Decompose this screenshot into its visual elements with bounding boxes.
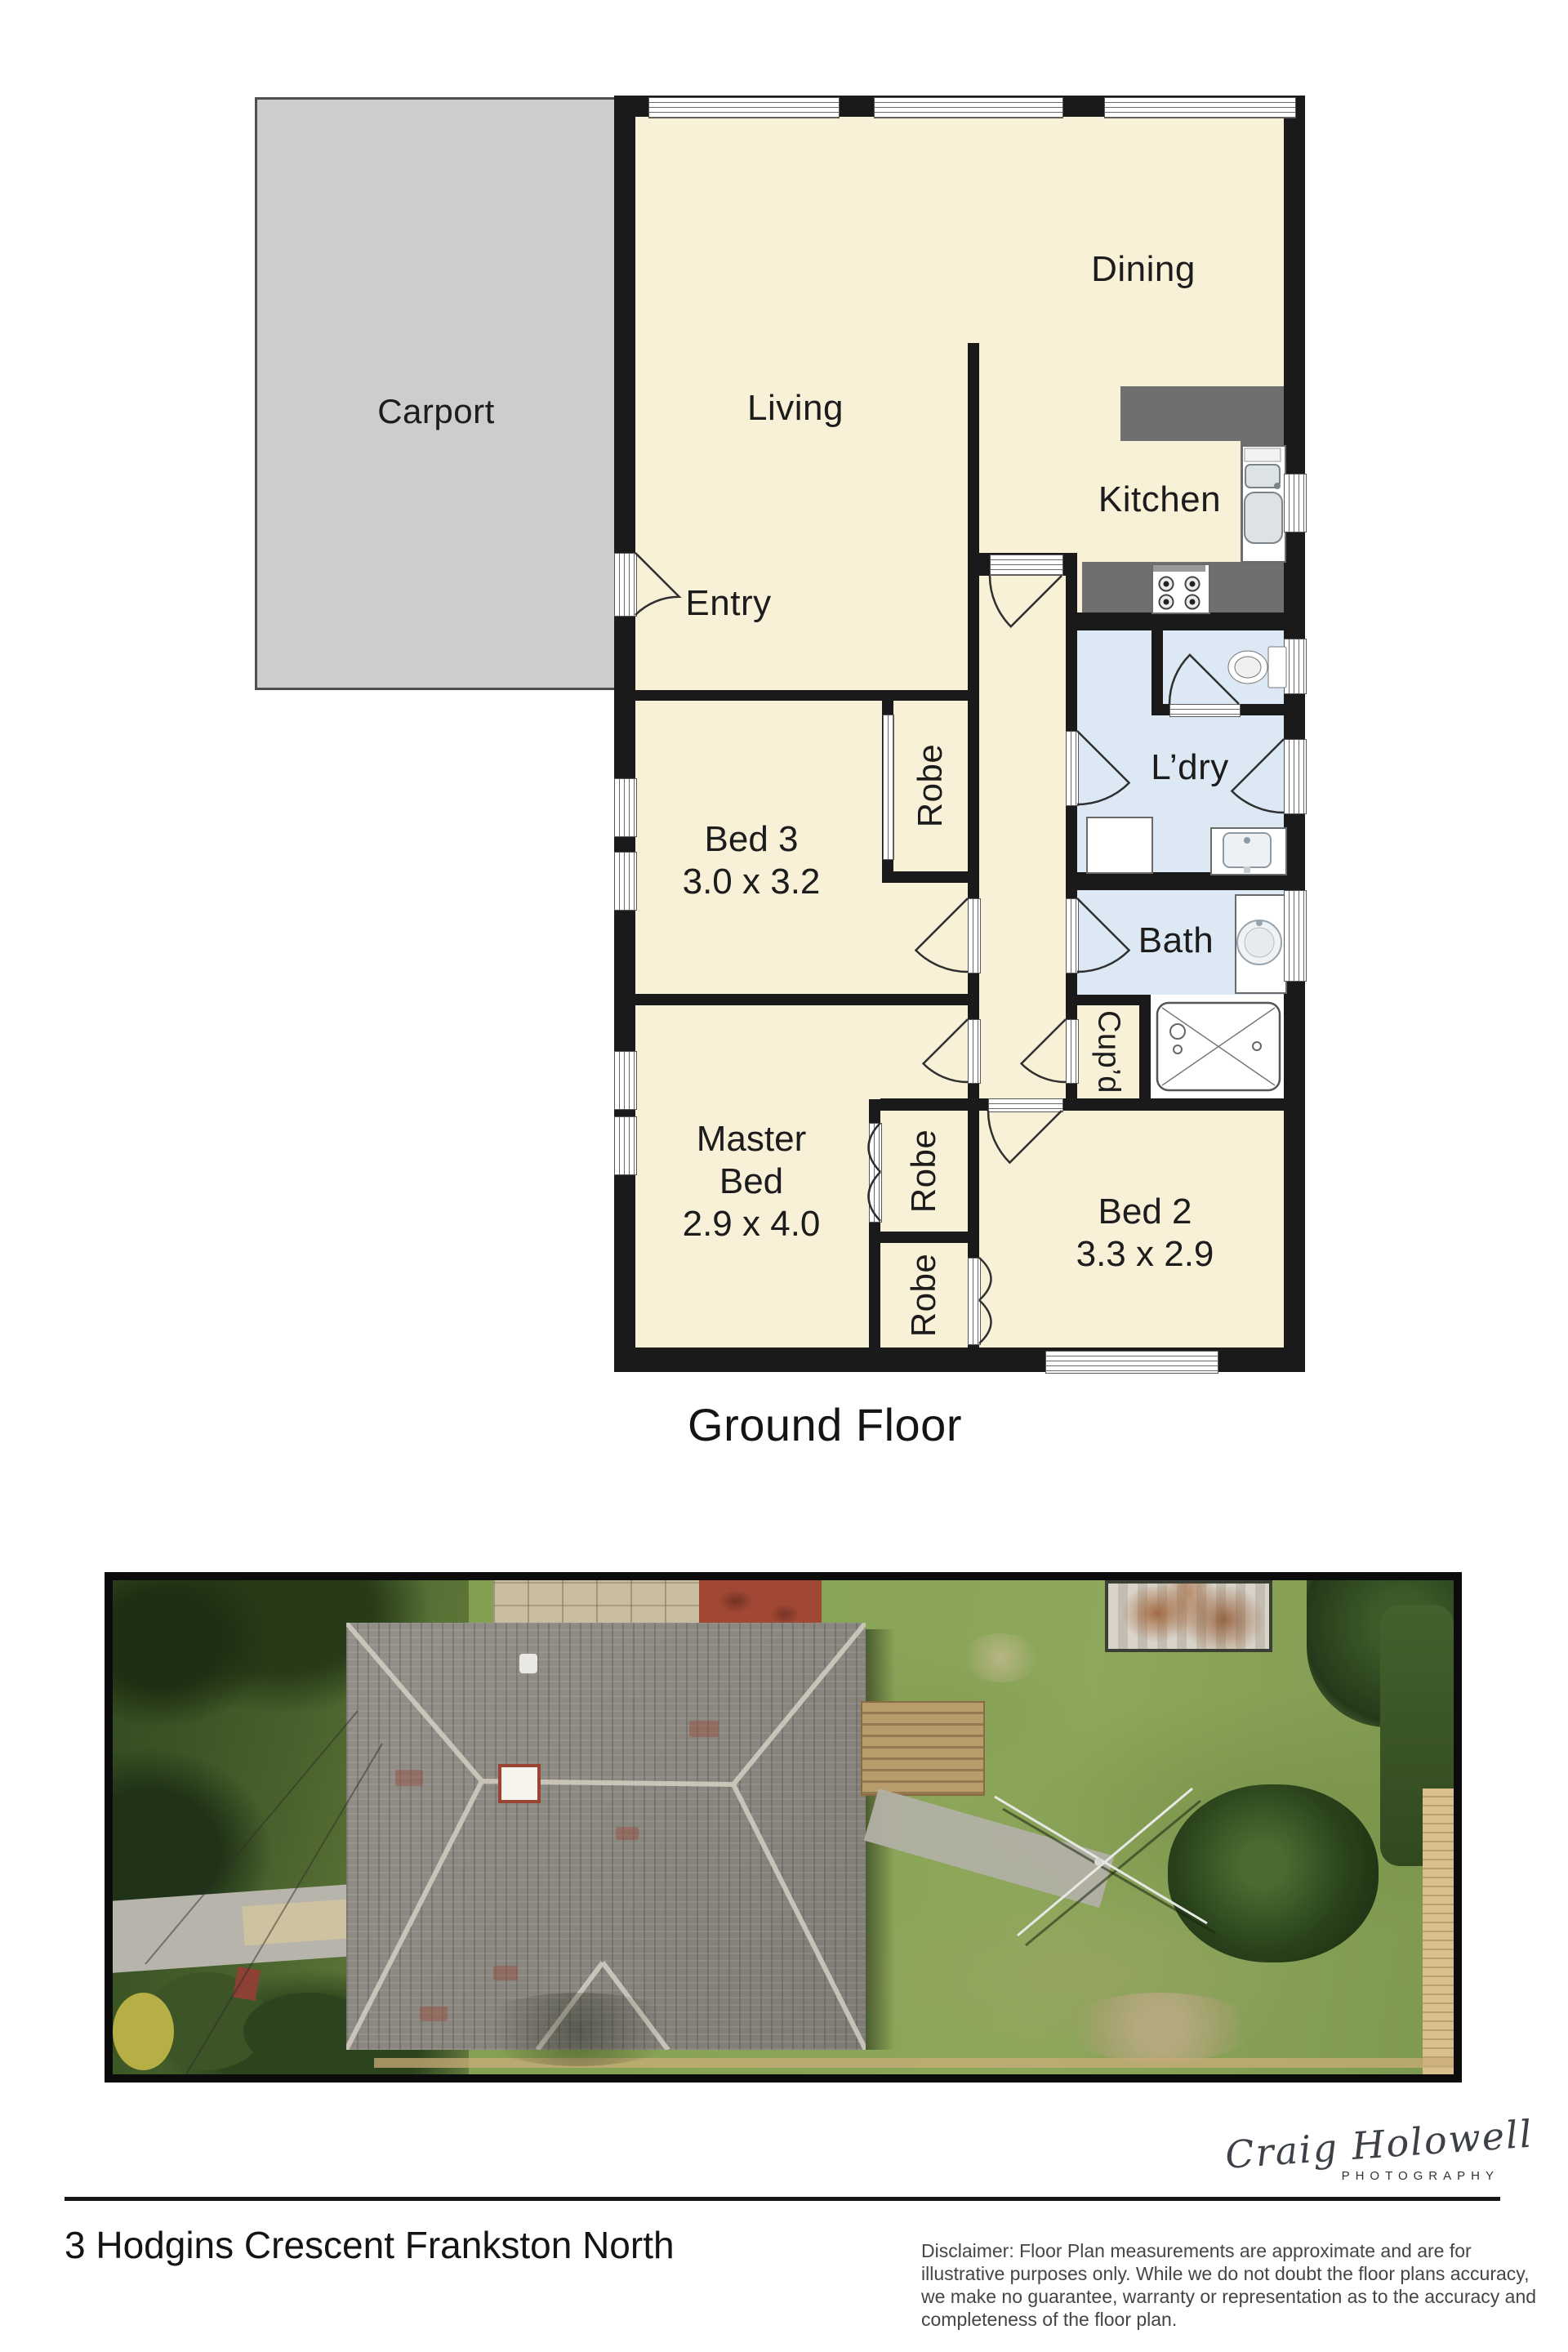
divider-line <box>65 2197 1500 2201</box>
toilet-icon <box>1228 647 1286 688</box>
room-label-dining: Dining <box>1091 249 1196 290</box>
kitchen-sink-icon <box>1245 448 1282 543</box>
door-arc-entry <box>635 553 679 615</box>
room-label-living: Living <box>747 388 844 429</box>
door-arc-master <box>924 1019 968 1082</box>
door-arc-wc <box>1169 655 1239 704</box>
room-label-bed2: Bed 2 3.3 x 2.9 <box>1076 1191 1214 1276</box>
stove-burners-icon <box>1153 565 1205 609</box>
room-label-master: Master Bed 2.9 x 4.0 <box>683 1118 821 1245</box>
disclaimer-text: Disclaimer: Floor Plan measurements are … <box>921 2239 1536 2331</box>
room-label-robe-master: Robe <box>904 1129 943 1213</box>
bath-basin-icon <box>1237 920 1281 964</box>
door-arc-laundry <box>1077 731 1129 804</box>
house-outline: Living Dining Kitchen Entry Bed 3 3.0 x … <box>614 96 1305 1372</box>
laundry-basin-icon <box>1223 833 1271 873</box>
room-label-kitchen: Kitchen <box>1098 479 1221 520</box>
room-label-cupboard: Cup’d <box>1091 1010 1126 1094</box>
plan-caption: Ground Floor <box>688 1398 962 1451</box>
aerial-photo-content <box>113 1580 1454 2074</box>
bifold-door-robe-bed2 <box>979 1258 991 1343</box>
door-arc-cupboard <box>1022 1019 1066 1082</box>
photographer-signature: Craig Holowell PHOTOGRAPHY <box>1225 2123 1503 2183</box>
room-label-entry: Entry <box>685 583 771 624</box>
floorplan-page: { "floorplan": { "caption": "Ground Floo… <box>0 0 1568 2352</box>
aerial-photo <box>105 1572 1462 2082</box>
door-arc-bed3 <box>915 898 968 972</box>
disclaimer-line: completeness of the floor plan. <box>921 2308 1536 2331</box>
signature-name: Craig Holowell <box>1224 2114 1504 2177</box>
room-label-bath: Bath <box>1138 920 1214 961</box>
door-arc-bath <box>1077 898 1129 972</box>
door-arc-hall <box>990 576 1062 626</box>
bifold-door-robe-master <box>869 1123 881 1221</box>
room-label-laundry: L’dry <box>1151 747 1228 788</box>
bathtub-icon <box>1157 1003 1280 1090</box>
room-label-robe-bed3: Robe <box>911 744 950 827</box>
door-arc-laundry-ext <box>1232 739 1284 813</box>
room-label-robe-bed2: Robe <box>904 1254 943 1337</box>
property-address: 3 Hodgins Crescent Frankston North <box>65 2223 675 2267</box>
antenna-and-lines <box>113 1580 1454 2074</box>
disclaimer-line: illustrative purposes only. While we do … <box>921 2262 1536 2285</box>
room-label-bed3: Bed 3 3.0 x 3.2 <box>683 818 821 903</box>
disclaimer-line: we make no guarantee, warranty or repres… <box>921 2285 1536 2308</box>
room-label-carport: Carport <box>377 392 495 431</box>
carport-area: Carport <box>255 97 617 690</box>
disclaimer-line: Disclaimer: Floor Plan measurements are … <box>921 2239 1536 2262</box>
door-arc-bed2 <box>988 1111 1062 1163</box>
